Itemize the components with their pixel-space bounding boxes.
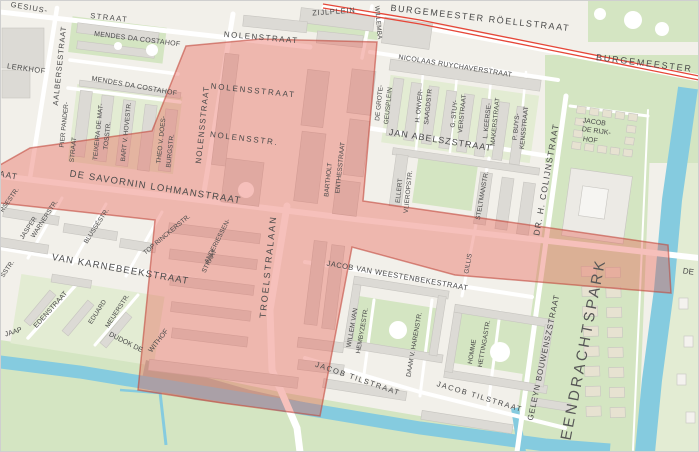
map-canvas[interactable]: GESIUS-STRAATLERKHOFMENDES DA COSTAHOFME… bbox=[0, 0, 699, 452]
city-map: GESIUS-STRAATLERKHOFMENDES DA COSTAHOFME… bbox=[0, 0, 699, 452]
street-label: DE bbox=[682, 266, 694, 276]
